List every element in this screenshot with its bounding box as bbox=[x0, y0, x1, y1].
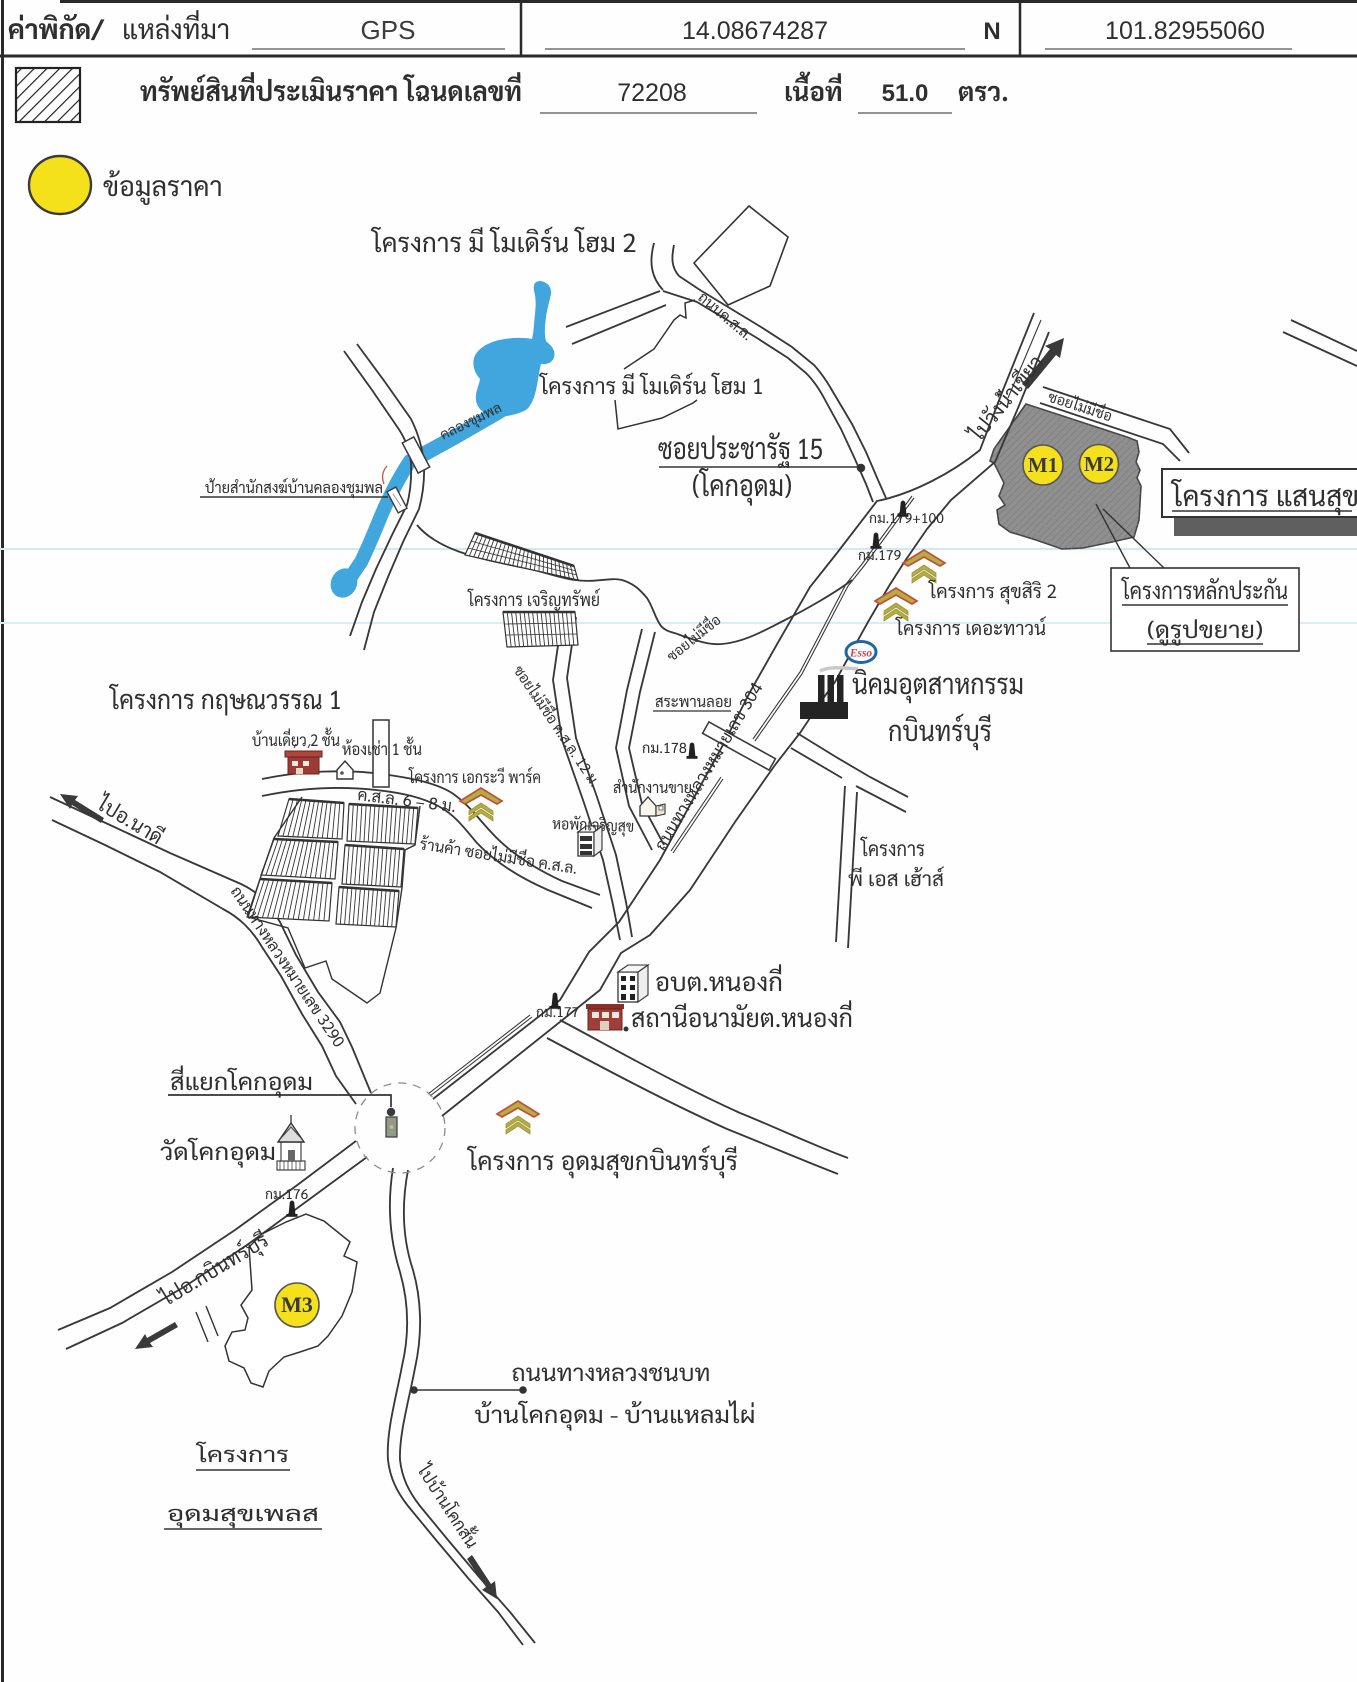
svg-text:M3: M3 bbox=[281, 1292, 313, 1317]
svg-text:M1: M1 bbox=[1028, 453, 1058, 477]
svg-text:M2: M2 bbox=[1084, 452, 1114, 476]
svg-text:72208: 72208 bbox=[617, 79, 687, 107]
svg-text:GPS: GPS bbox=[361, 15, 416, 45]
svg-text:51.0: 51.0 bbox=[882, 80, 929, 107]
svg-text:Esso: Esso bbox=[849, 648, 873, 660]
svg-text:N: N bbox=[983, 18, 1000, 45]
svg-text:14.08674287: 14.08674287 bbox=[682, 17, 828, 45]
svg-text:101.82955060: 101.82955060 bbox=[1105, 17, 1265, 45]
